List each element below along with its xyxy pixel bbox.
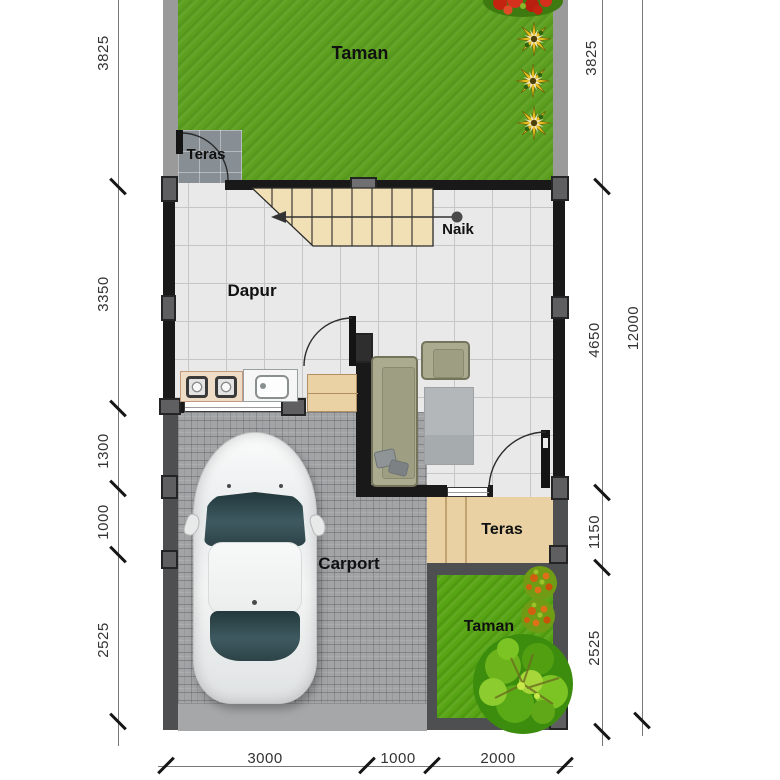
kitchen-label: Dapur	[221, 281, 283, 301]
right-boundary-wall-top	[553, 0, 568, 183]
bottom-boundary-wall	[427, 718, 568, 730]
column	[354, 333, 373, 363]
left-boundary-wall-bottom	[163, 413, 178, 730]
wall-top	[225, 180, 568, 190]
terrace-plank-line	[445, 497, 447, 565]
column	[551, 176, 569, 201]
floor-plan: Taman Teras Naik Dapur Carport Teras Tam…	[0, 0, 780, 780]
carport-label: Carport	[313, 554, 385, 574]
garden-bottom	[437, 575, 553, 720]
dim-label: 12000	[625, 293, 643, 363]
kitchen-window	[184, 401, 282, 412]
terrace-garden-divider	[427, 563, 568, 575]
dim-label: 3825	[95, 18, 113, 88]
stairs-up-label: Naik	[434, 221, 482, 238]
right-boundary-wall-bottom	[553, 497, 568, 730]
column	[549, 707, 568, 730]
garden-bottom-label: Taman	[460, 618, 518, 636]
dim-label: 1000	[363, 750, 433, 768]
column	[350, 177, 377, 191]
door-handle	[543, 438, 548, 448]
dim-label: 1150	[586, 497, 604, 567]
wall-post-window	[488, 485, 493, 497]
rug	[424, 387, 474, 465]
dim-label: 2000	[463, 750, 533, 768]
windshield	[204, 492, 306, 546]
kitchen-cabinet	[307, 374, 357, 412]
dim-label: 1300	[95, 416, 113, 486]
dim-label: 3350	[95, 259, 113, 329]
terrace-bottom-label: Teras	[475, 521, 529, 539]
burner-icon	[215, 376, 237, 398]
kitchen-sink	[243, 369, 298, 402]
column	[161, 550, 178, 569]
antenna-icon	[252, 600, 257, 605]
column	[161, 475, 178, 499]
dim-label: 2525	[586, 613, 604, 683]
dim-label: 1000	[95, 487, 113, 557]
burner-icon	[186, 376, 208, 398]
garden-bottom-left-edge	[427, 563, 437, 730]
column	[161, 176, 178, 202]
car-icon	[191, 428, 319, 708]
dim-label: 3000	[230, 750, 300, 768]
dim-label: 3825	[583, 23, 601, 93]
column	[161, 295, 176, 321]
terrace-top-label: Teras	[180, 146, 232, 163]
left-boundary-wall-top	[163, 0, 178, 183]
kitchen-living-door-leaf	[349, 316, 356, 366]
terrace-plank-line	[465, 497, 467, 565]
armchair	[421, 341, 470, 380]
column	[159, 398, 181, 415]
living-window	[447, 487, 488, 497]
dim-label: 4650	[586, 305, 604, 375]
dimension-line-left	[118, 0, 119, 746]
faucet-icon	[260, 383, 266, 389]
column	[551, 296, 569, 319]
stove	[180, 371, 243, 402]
rear-window	[210, 611, 300, 661]
garden-top-label: Taman	[310, 43, 410, 64]
dim-label: 2525	[95, 605, 113, 675]
wall-right	[553, 183, 565, 490]
column	[549, 545, 568, 564]
dimension-line-right-outer	[642, 0, 643, 736]
column	[551, 476, 569, 500]
